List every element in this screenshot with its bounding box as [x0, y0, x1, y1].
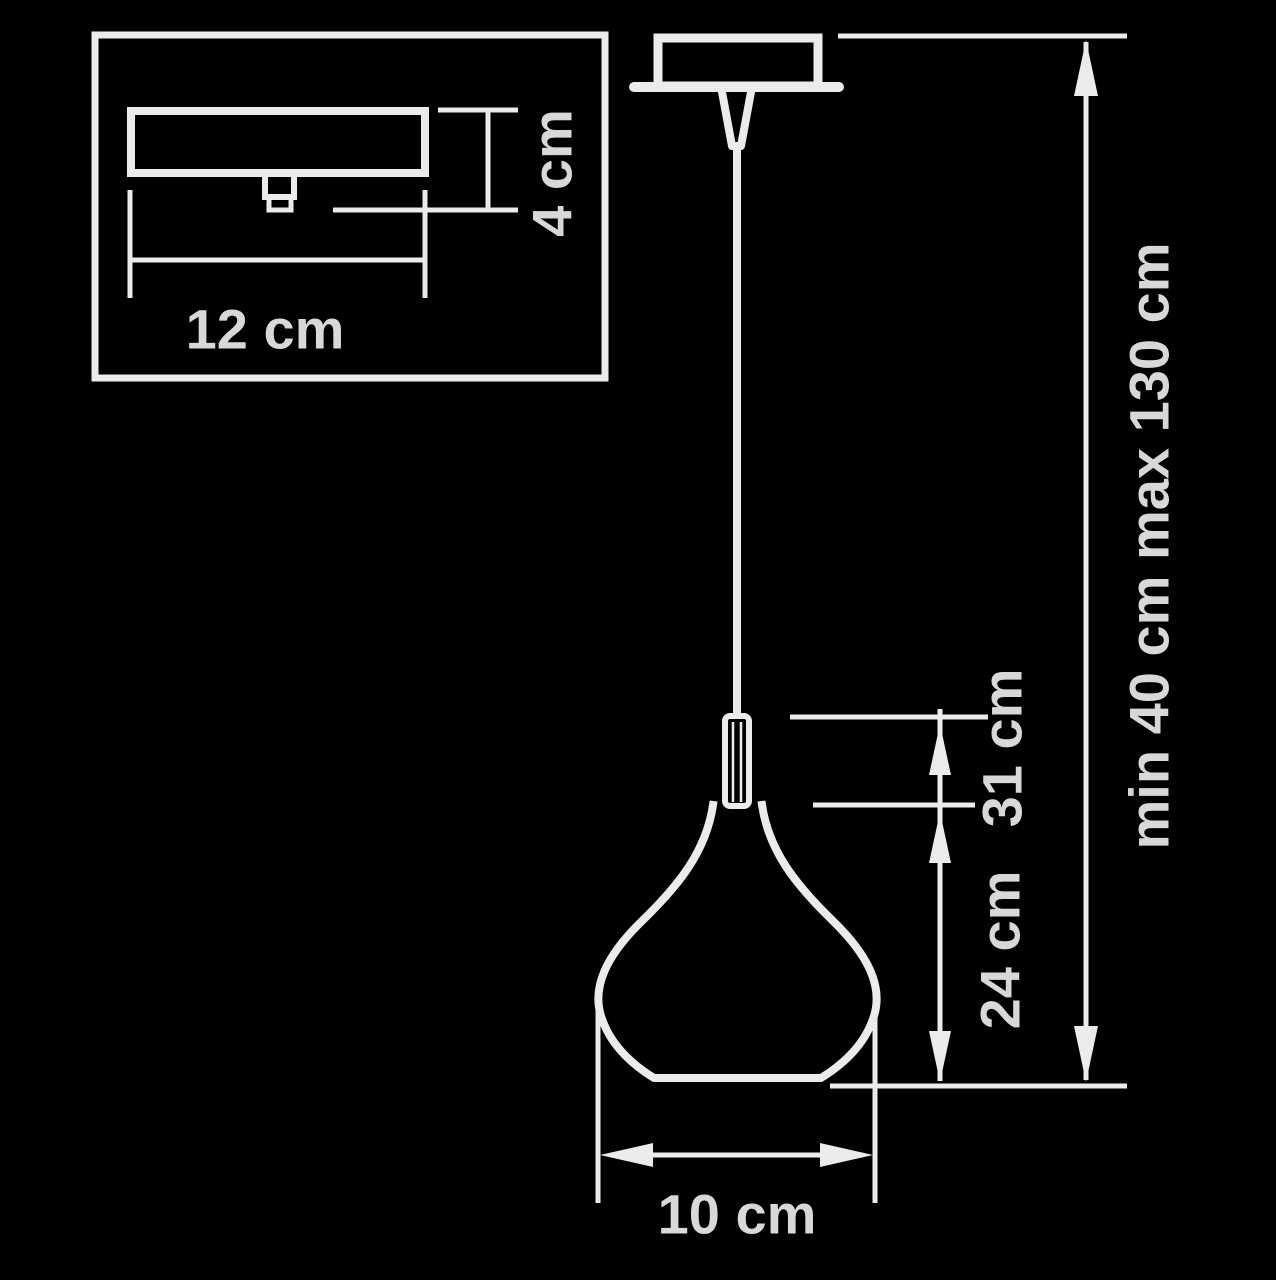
dim-shade-height-arrow-down: [929, 1031, 951, 1082]
dim-shade-height-arrow-up: [929, 812, 951, 863]
dim-shade-height: 24 cm: [813, 805, 1032, 1082]
canopy-box: [658, 38, 818, 86]
inset-mounting-clip-tab: [269, 197, 291, 210]
pendant-dimension-diagram: 12 cm 4 cm 31 cm 24 cm: [0, 0, 1276, 1280]
dim-shade-diameter-arrow-right: [820, 1143, 873, 1167]
ceiling-canopy: [634, 38, 839, 146]
dim-shade-diameter: 10 cm: [598, 1006, 875, 1246]
lamp-shade: [598, 805, 876, 1078]
dim-body-height-arrow-up: [929, 724, 951, 775]
dim-canopy-width-label: 12 cm: [186, 298, 345, 361]
socket-tube: [725, 716, 749, 806]
inset-panel: 12 cm 4 cm: [95, 35, 605, 378]
dim-canopy-width: 12 cm: [130, 190, 425, 361]
inset-canopy-body: [131, 111, 425, 173]
dim-total-height-arrow-up: [1074, 40, 1098, 96]
dim-shade-diameter-label: 10 cm: [658, 1183, 817, 1246]
dim-shade-height-label: 24 cm: [969, 871, 1032, 1030]
dim-shade-diameter-arrow-left: [600, 1143, 653, 1167]
dim-total-height-label: min 40 cm max 130 cm: [1118, 242, 1181, 849]
socket-tube-outline: [725, 716, 749, 806]
dim-canopy-height-label: 4 cm: [521, 109, 584, 237]
diagram-canvas: 12 cm 4 cm 31 cm 24 cm: [0, 0, 1276, 1280]
dim-body-height-label: 31 cm: [971, 669, 1034, 828]
dim-total-height-arrow-down: [1074, 1026, 1098, 1082]
cord-grip-cone: [722, 92, 751, 146]
